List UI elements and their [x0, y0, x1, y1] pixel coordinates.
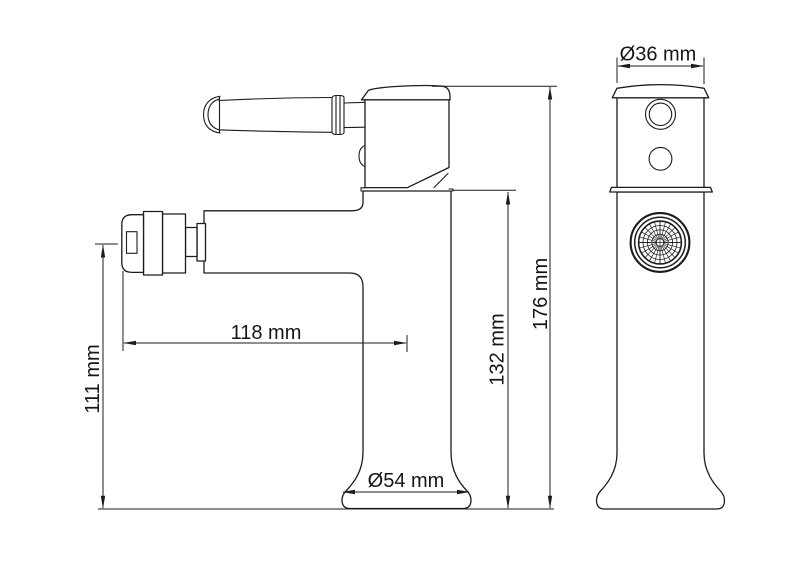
arrowhead-up [548, 87, 552, 100]
arrowhead-left [123, 341, 136, 345]
dim-label-spout-height: 111 mm [82, 344, 104, 413]
spout-aerator-side [122, 212, 206, 276]
faucet-dimension-drawing: Ø36 mm 176 mm 132 mm [0, 0, 800, 566]
dim-label-base-diameter: Ø54 mm [368, 470, 445, 492]
arrowhead-down [506, 496, 510, 509]
aerator-cap [122, 215, 144, 273]
side-view [122, 86, 471, 509]
head-set-screw [359, 146, 365, 167]
dim-label-body-height: 132 mm [487, 313, 509, 385]
dimension-spout-height: 111 mm [82, 244, 118, 509]
dimension-spout-diameter: Ø36 mm [617, 44, 704, 85]
handle-grip [219, 97, 332, 133]
aerator-front [631, 213, 690, 272]
handle-collar [332, 96, 344, 135]
faucet-body-side [204, 191, 471, 509]
arrowhead-up [101, 245, 105, 258]
faucet-head-side [359, 86, 453, 191]
dim-label-spout-reach: 118 mm [231, 322, 302, 344]
aerator-ring-front [144, 212, 163, 276]
head-chamfer-edge [434, 174, 448, 188]
front-view [597, 85, 725, 509]
technical-drawing-page: Ø36 mm 176 mm 132 mm [0, 0, 800, 566]
dim-label-spout-diameter: Ø36 mm [620, 44, 697, 66]
head-block [365, 100, 449, 188]
handle-lever [204, 96, 367, 135]
aerator-flange [197, 224, 206, 262]
joint-flange-front [610, 187, 713, 192]
arrowhead-down [101, 496, 105, 509]
aerator-ring-rear [163, 214, 186, 273]
head-cap [362, 86, 451, 100]
head-block-front [617, 98, 704, 188]
arrowhead-up [506, 192, 510, 205]
head-cap-front [612, 85, 708, 98]
head-body-seam [361, 188, 453, 191]
handle-neck [344, 102, 366, 127]
aerator-neck [186, 228, 198, 257]
dimension-body-height: 132 mm [453, 190, 516, 509]
dim-label-total-height: 176 mm [530, 258, 552, 330]
faucet-body-front [597, 192, 725, 509]
handle-end-cap [204, 96, 221, 133]
arrowhead-down [548, 496, 552, 509]
